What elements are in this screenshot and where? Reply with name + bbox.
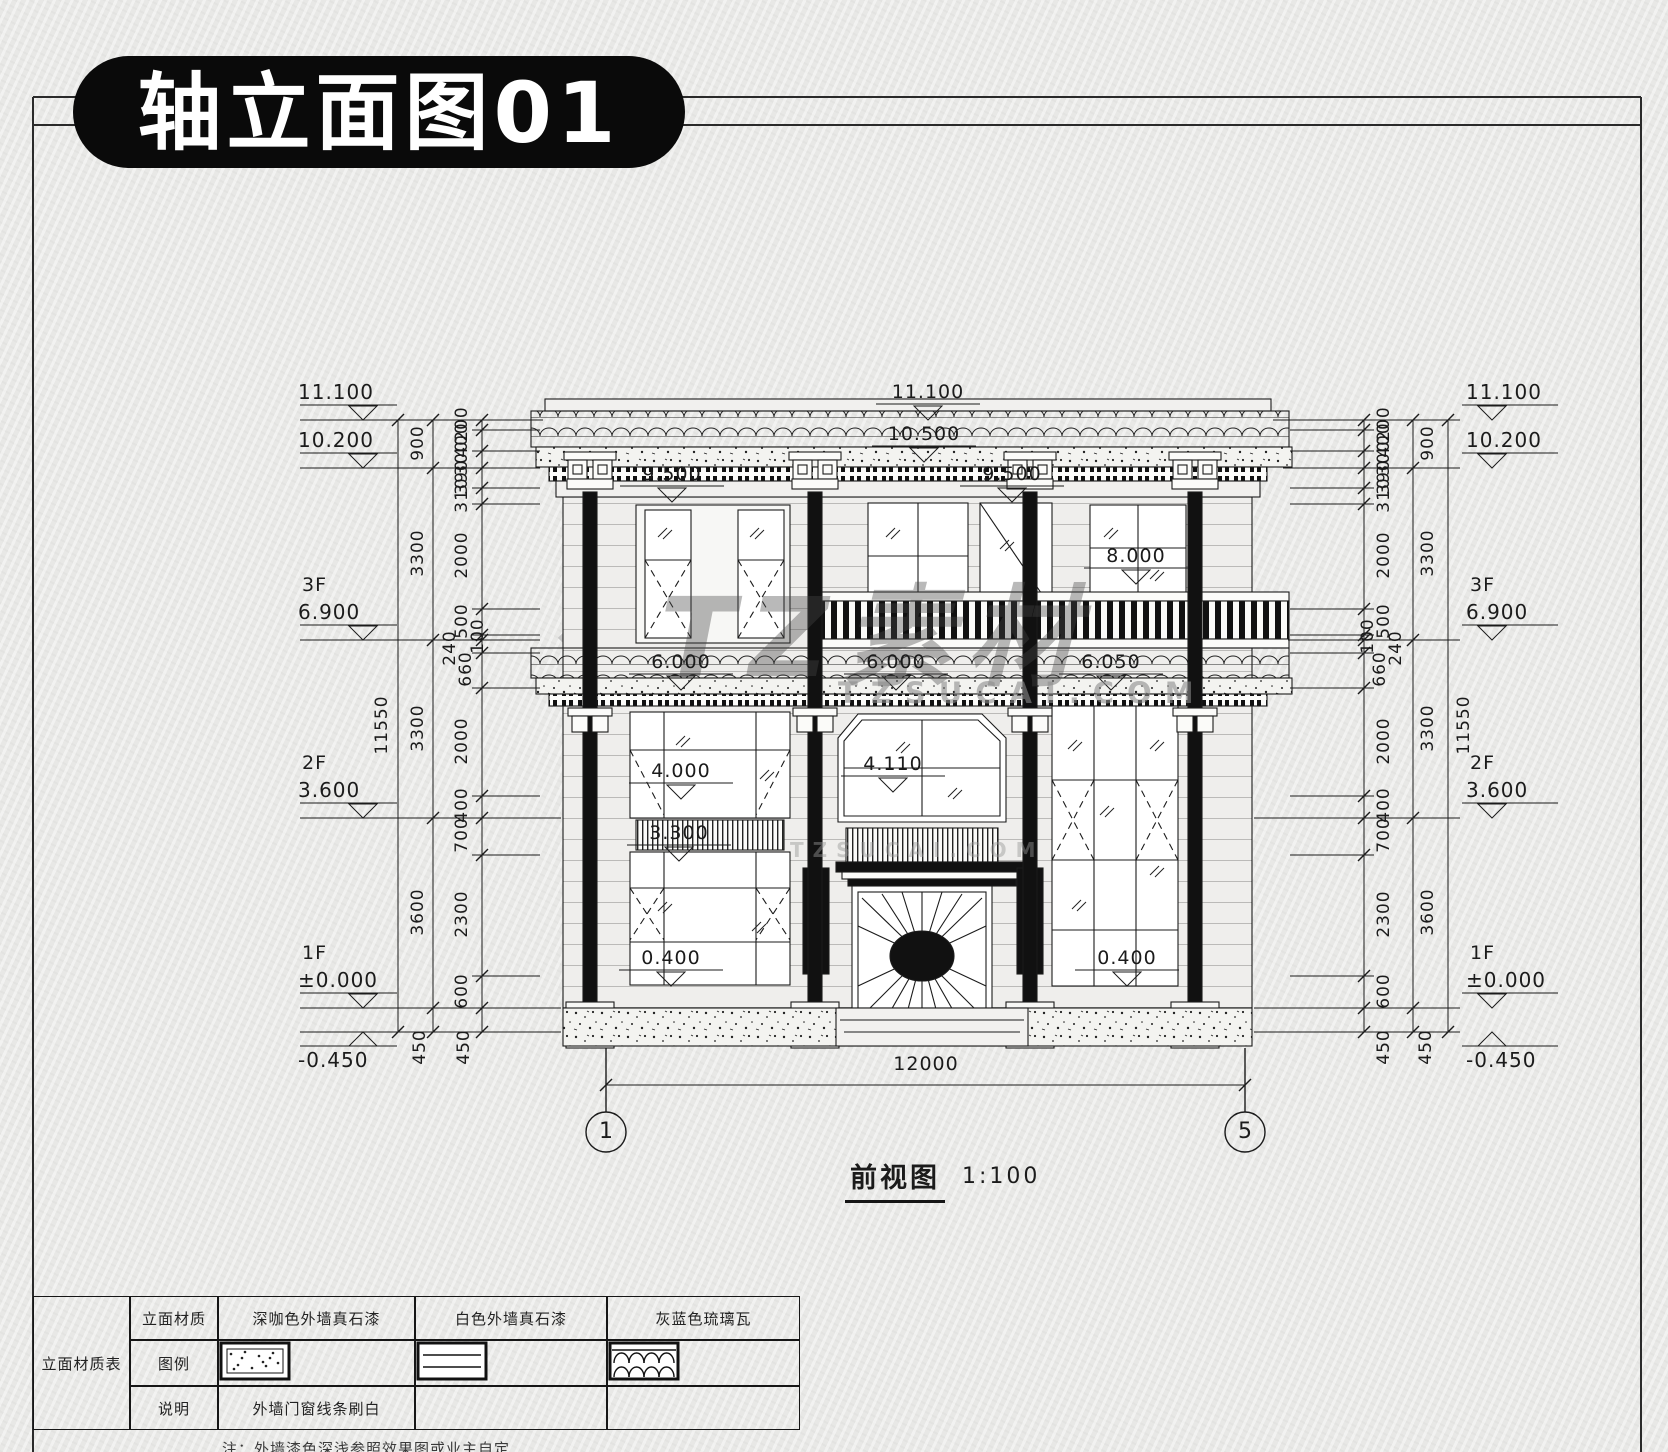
axis-bubbles [586,1048,1265,1152]
axis-number-left: 1 [586,1119,626,1144]
canopy-dentil-band [549,694,1267,706]
right-tall-window [1052,706,1178,986]
2f-center-bay-window [838,714,1006,822]
3f-right-window [1090,505,1186,605]
door-sunburst-medallion [890,931,954,981]
balcony-balustrade [810,592,1289,648]
3f-left-twin-windows [636,505,790,643]
2f-left-window [630,712,790,818]
drawing-sheet: 轴立面图01 TZ素材 TZSUCAI.COM TZSUCAI.COM 前视图 … [0,0,1668,1452]
axis-number-right: 5 [1225,1119,1265,1144]
2f-center-louver [846,828,998,862]
roof-fascia [556,481,1260,497]
roof-ridge-cap [545,399,1271,411]
elevation-line-art [0,0,1668,1452]
canopy-slab [536,678,1292,694]
view-scale: 1:100 [962,1164,1040,1189]
1f-left-window [630,852,790,985]
sheet-note: 注：外墙漆色深浅参照效果图或业主自定 [222,1438,510,1452]
building-elevation [531,399,1292,1048]
roof-dentil-band [549,467,1267,481]
roof-tiles [531,411,1289,447]
view-caption: 前视图 [845,1156,945,1203]
sheet-title: 轴立面图01 [73,56,685,168]
door-platform [836,1008,1028,1046]
